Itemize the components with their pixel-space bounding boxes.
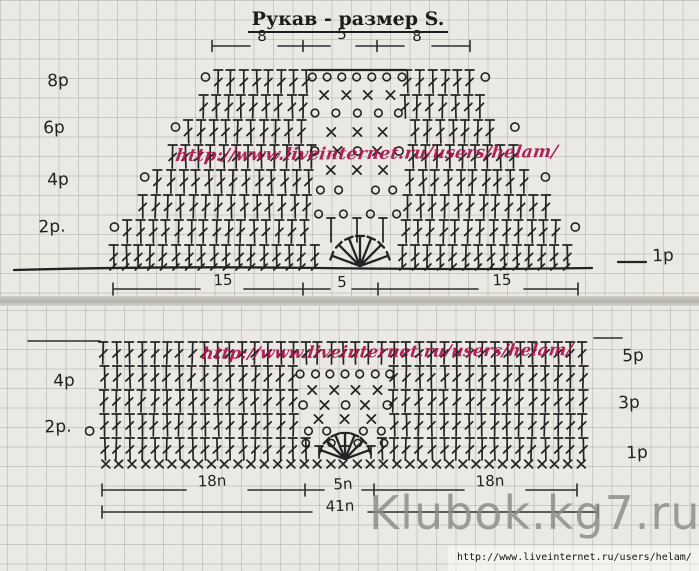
row-label: 8p: [40, 70, 77, 91]
measure-label: 5: [327, 24, 358, 43]
watermark-red-url: http://www.liveinternet.ru/users/helam/: [174, 142, 559, 166]
row-label: 6p: [36, 117, 73, 138]
row-label: 4p: [46, 370, 83, 391]
source-url-text: http://www.liveinternet.ru/users/helam/: [457, 552, 692, 563]
watermark-site: Klubok.kg7.ru: [369, 486, 699, 540]
watermark-red-url: http://www.liveinternet.ru/users/helam/: [201, 340, 574, 363]
measure-label: 5: [330, 273, 355, 292]
measure-label: 5n: [328, 474, 359, 493]
measure-label: 8: [402, 26, 433, 45]
scanned-crochet-pattern: Рукав - размер S. 8 5 8 8p 6p 4p 2p. 1p …: [0, 0, 699, 571]
row-label: 2p.: [40, 416, 77, 437]
row-label: 3p: [611, 392, 648, 413]
row-label: 4p: [40, 169, 77, 190]
measure-label: 15: [205, 270, 242, 289]
row-label: 5p: [615, 345, 652, 366]
measure-label: 18n: [190, 471, 235, 491]
row-label: 2p.: [34, 216, 71, 237]
row-label: 1p: [619, 442, 656, 463]
measure-label: 41n: [318, 496, 363, 516]
measure-label: 8: [247, 26, 278, 45]
measure-label: 15: [484, 270, 521, 289]
row-label: 1p: [645, 245, 682, 266]
